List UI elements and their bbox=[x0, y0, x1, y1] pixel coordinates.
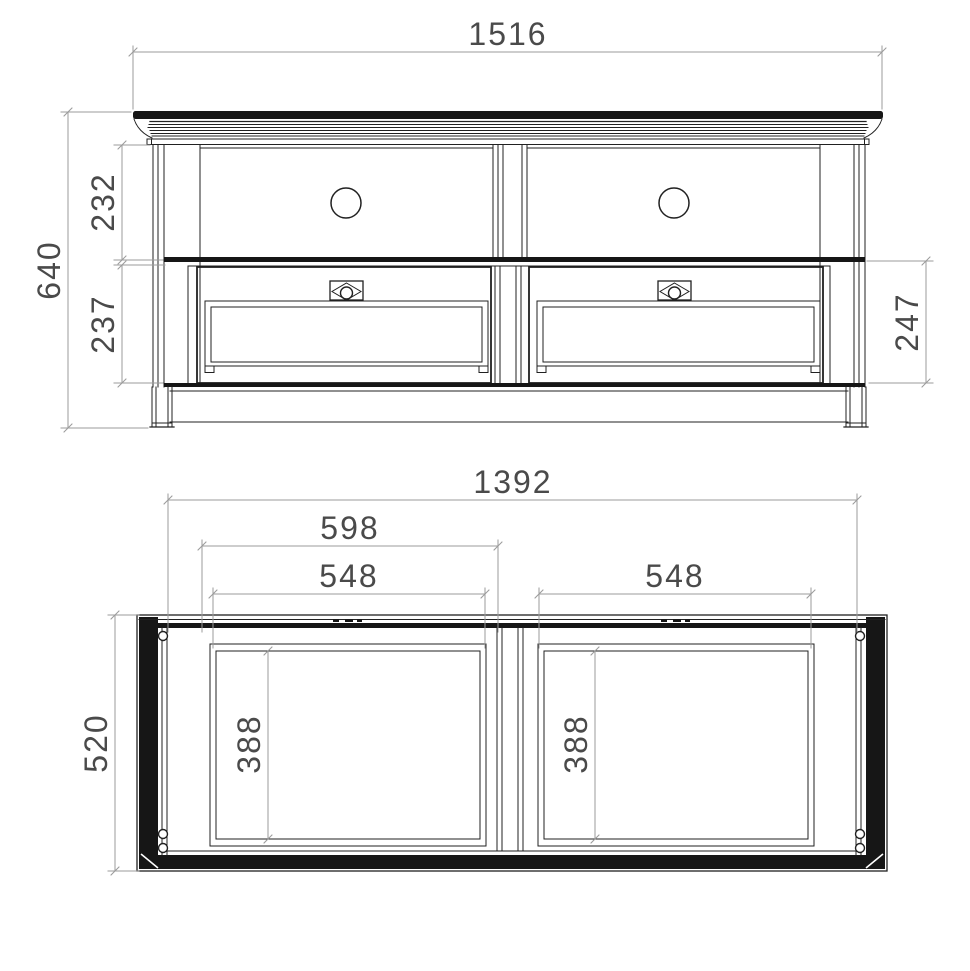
dim-label-548-left: 548 bbox=[319, 558, 378, 594]
front-dimensions: 1516 640 232 bbox=[31, 16, 933, 432]
dim-plan-left-opening-depth: 388 bbox=[231, 647, 272, 843]
dim-label-388-right: 388 bbox=[558, 714, 594, 773]
dim-label-247: 247 bbox=[889, 292, 925, 351]
dim-label-388-left: 388 bbox=[231, 714, 267, 773]
dim-label-232: 232 bbox=[85, 172, 121, 231]
dim-label-1392: 1392 bbox=[473, 464, 552, 500]
left-drawer-knob bbox=[330, 281, 363, 300]
front-right-foot bbox=[844, 387, 868, 427]
fitting-hole bbox=[856, 830, 865, 839]
right-drawer-knob bbox=[658, 281, 691, 300]
dim-plan-right-opening-depth: 388 bbox=[558, 647, 599, 843]
dim-plan-left-opening-width: 548 bbox=[209, 558, 489, 648]
dim-front-overall-width: 1516 bbox=[129, 16, 886, 109]
dim-label-640: 640 bbox=[31, 240, 67, 299]
dim-label-1516: 1516 bbox=[468, 16, 547, 52]
dim-label-237: 237 bbox=[85, 294, 121, 353]
front-left-foot bbox=[150, 387, 174, 427]
front-right-drawer bbox=[529, 267, 823, 383]
front-shelf bbox=[164, 257, 865, 262]
fitting-hole bbox=[856, 632, 865, 641]
fitting-hole bbox=[159, 632, 168, 641]
dim-plan-right-opening-width: 548 bbox=[535, 558, 815, 648]
cable-hole-right bbox=[659, 188, 689, 218]
dim-label-520: 520 bbox=[78, 713, 114, 772]
furniture-drawing: 1516 640 232 bbox=[0, 0, 970, 971]
front-view: 1516 640 232 bbox=[31, 16, 933, 432]
dim-front-drawer-section-height: 247 bbox=[867, 257, 933, 387]
front-top-crown bbox=[133, 111, 883, 145]
technical-drawing-canvas: 1516 640 232 bbox=[0, 0, 970, 971]
dim-label-548-right: 548 bbox=[645, 558, 704, 594]
fitting-hole bbox=[856, 844, 865, 853]
plan-view: 1392 598 548 bbox=[78, 464, 887, 875]
plan-dimensions: 1392 598 548 bbox=[78, 464, 861, 875]
dim-front-shelf-height: 232 bbox=[85, 141, 163, 264]
cable-hole-left bbox=[331, 188, 361, 218]
front-plinth bbox=[150, 383, 868, 427]
front-drawer-section bbox=[188, 266, 830, 383]
plan-center-divider bbox=[497, 628, 523, 851]
dim-plan-overall-depth: 520 bbox=[78, 611, 139, 875]
fitting-hole bbox=[159, 844, 168, 853]
dim-plan-carcass-width: 1392 bbox=[164, 464, 861, 632]
front-open-compartments bbox=[200, 145, 820, 258]
front-left-drawer bbox=[197, 267, 491, 383]
fitting-hole bbox=[159, 830, 168, 839]
dim-label-598: 598 bbox=[320, 510, 379, 546]
